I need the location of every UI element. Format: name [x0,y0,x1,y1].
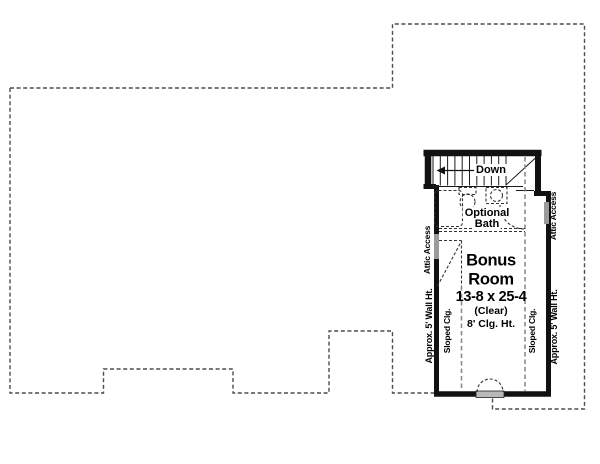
room-title-line1: Bonus [466,252,516,271]
sloped-ceiling-label-left: Sloped Clg. [442,309,452,354]
attic-hatch-left [438,241,462,287]
floor-plan-drawing [0,0,600,464]
roof-outline-left-bottom [10,88,434,393]
down-label: Down [474,164,508,176]
wall-height-label-left: Approx. 5' Wall Ht. [424,288,434,363]
sink-outline [486,188,507,204]
window-arc [477,379,503,392]
floor-plan: Down Optional Bath Bonus Room 13-8 x 25-… [0,0,600,464]
wall-height-label-right: Approx. 5' Wall Ht. [549,289,559,364]
attic-access-panel-left [434,234,439,259]
optional-bath-label-line2: Bath [473,218,501,230]
room-ceiling-height: 8' Clg. Ht. [467,318,515,330]
window-sill [476,391,504,398]
stair-landing-diagonal [506,157,537,185]
room-dimensions: 13-8 x 25-4 [456,289,527,305]
left-arrow-icon [437,167,478,175]
attic-access-label-right: Attic Access [548,192,558,240]
sloped-ceiling-label-right: Sloped Clg. [527,309,537,354]
room-clear-note: (Clear) [474,305,507,317]
room-title-line2: Room [468,271,514,290]
attic-access-label-left: Attic Access [422,226,432,274]
